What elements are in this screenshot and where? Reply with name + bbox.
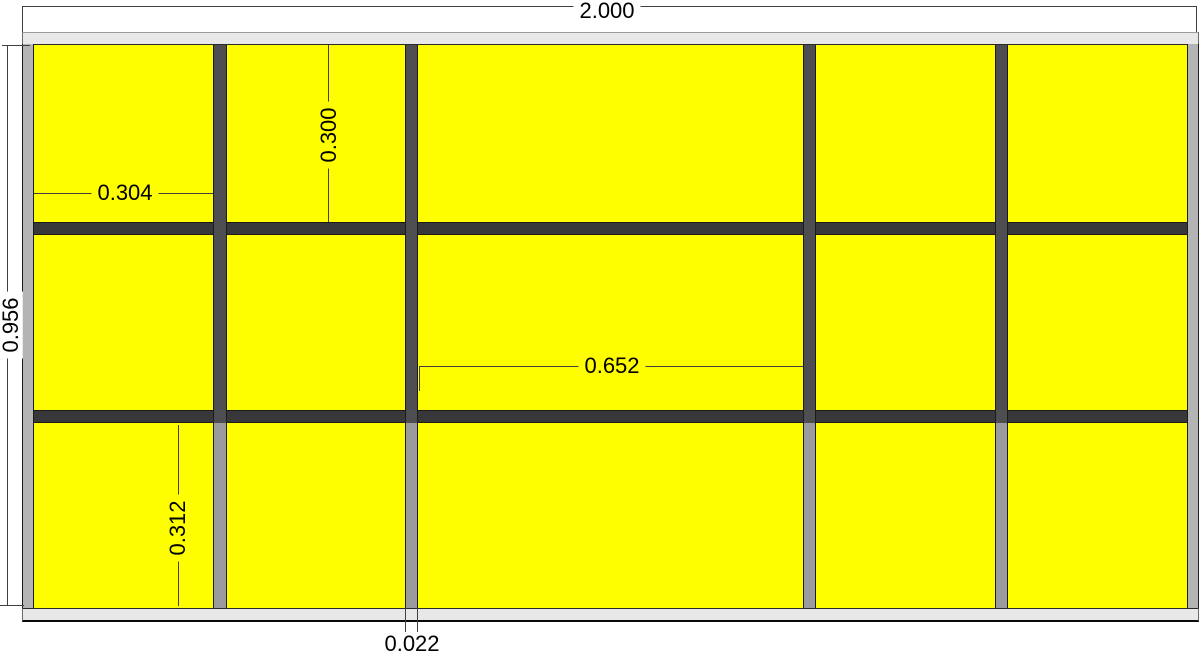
panel-cell-r2c4 — [815, 234, 996, 411]
dim-label-bottom-row-height: 0.312 — [166, 494, 190, 561]
mullion-dark-4 — [995, 44, 1008, 423]
panel-cell-r3c3 — [417, 422, 804, 609]
dim-label-center-cell-width: 0.652 — [578, 354, 645, 378]
panel-cell-r3c5 — [1007, 422, 1188, 609]
frame-bottom-cap — [22, 608, 1199, 622]
frame-right-stile — [1187, 44, 1199, 608]
panel-cell-r1c4 — [815, 44, 996, 223]
panel-cell-r3c4 — [815, 422, 996, 609]
mullion-gray-3 — [803, 423, 816, 608]
panel-cell-r1c3 — [417, 44, 804, 223]
dim-label-top-row-height: 0.300 — [317, 101, 341, 168]
horizontal-rail-lower — [33, 410, 1187, 423]
frame-top-cap — [22, 32, 1199, 45]
panel-technical-drawing: 2.000 0.956 0.304 0.300 0.652 0.312 0.02… — [0, 0, 1200, 653]
mullion-dark-1 — [213, 44, 227, 423]
mullion-dark-3 — [803, 44, 816, 423]
dim-label-bottom-divider-width: 0.022 — [378, 632, 445, 653]
dim-label-first-cell-width: 0.304 — [91, 181, 158, 205]
dim-label-overall-width: 2.000 — [573, 0, 640, 23]
panel-cell-r2c2 — [226, 234, 406, 411]
dim-ext-center-cell-width — [419, 366, 420, 391]
mullion-gray-4 — [995, 423, 1008, 608]
panel-cell-r1c5 — [1007, 44, 1188, 223]
dim-ext-overall-height-bottom — [0, 605, 24, 606]
mullion-gray-1 — [213, 423, 227, 608]
frame-left-stile — [22, 44, 34, 608]
dim-ext-overall-width-right — [1196, 6, 1197, 32]
panel-cell-r2c3 — [417, 234, 804, 411]
horizontal-rail-upper — [33, 222, 1187, 235]
dim-label-overall-height: 0.956 — [0, 291, 23, 358]
dim-ext-overall-height-top — [2, 45, 30, 46]
mullion-gray-2 — [405, 423, 418, 608]
panel-cell-r3c2 — [226, 422, 406, 609]
mullion-dark-2 — [405, 44, 418, 423]
panel-cell-r2c5 — [1007, 234, 1188, 411]
panel-cell-r2c1 — [33, 234, 214, 411]
dim-ext-overall-width-left — [22, 6, 23, 32]
